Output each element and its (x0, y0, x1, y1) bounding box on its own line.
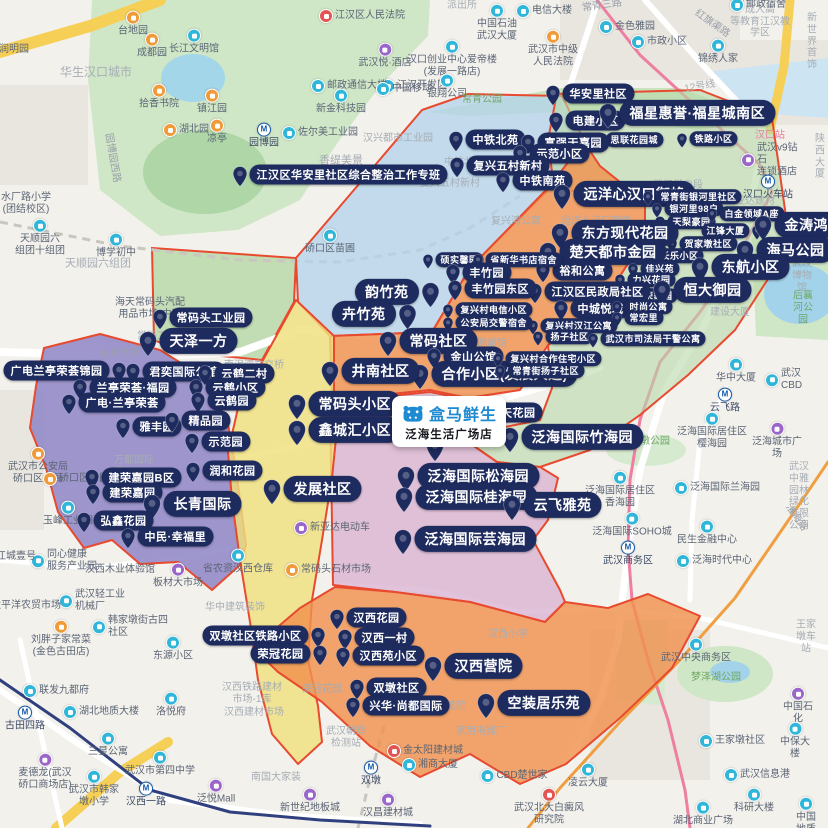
map-pin[interactable]: 荣冠花园 (251, 645, 328, 666)
metro-station-icon[interactable] (761, 175, 775, 189)
pin-label[interactable]: 常码头小区 (309, 391, 402, 417)
pin-label[interactable]: 广电·兰亭荣荟 (79, 392, 166, 412)
map-pin[interactable]: 发展社区 (263, 479, 362, 505)
location-pin-icon[interactable] (394, 529, 413, 555)
poi-icon[interactable] (210, 119, 224, 133)
location-pin-icon[interactable] (707, 208, 718, 223)
poi-icon[interactable] (599, 20, 613, 34)
poi-label-text: 金太阳建材城 (403, 745, 463, 757)
map-pin[interactable]: 江汉区华安里社区综合整治工作专班 (233, 166, 448, 187)
poi-icon[interactable] (440, 74, 454, 88)
pin-label[interactable]: 井南社区 (342, 358, 420, 384)
poi-icon[interactable] (87, 770, 101, 784)
pin-label[interactable]: 泛海国际芸海园 (415, 526, 537, 552)
poi-icon[interactable] (613, 471, 627, 485)
poi-label-text: 民生金融中心 (677, 535, 737, 547)
location-pin-icon[interactable] (677, 133, 688, 148)
location-pin-icon[interactable] (186, 462, 201, 483)
pin-label[interactable]: 汉西营院 (445, 653, 523, 679)
poi-label[interactable]: 博学初中 (96, 233, 136, 260)
metro-station-icon[interactable] (257, 123, 271, 137)
location-pin-icon[interactable] (599, 103, 618, 129)
poi-icon[interactable] (699, 734, 713, 748)
pin-label[interactable]: 润和花园 (203, 460, 263, 480)
poi-label[interactable]: 武汉市中级 人民法院 (528, 30, 578, 69)
poi-label[interactable]: 金色雅园 (599, 20, 655, 34)
poi-label[interactable]: 江汉区人民法院 (319, 9, 405, 23)
map-pin[interactable]: 示范园 (185, 433, 251, 454)
location-pin-icon[interactable] (288, 420, 307, 446)
location-pin-icon[interactable] (379, 331, 398, 357)
poi-icon[interactable] (101, 732, 115, 746)
poi-label[interactable]: 佐尔美工业园 (282, 126, 358, 140)
poi-label-text: 镇江园 (197, 104, 227, 116)
poi-label[interactable]: 双墩 (361, 761, 381, 788)
poi-label-text: 武汉北大白癜风 研究院 (514, 803, 584, 827)
poi-icon[interactable] (187, 29, 201, 43)
map-text-label: 江城壹号 (0, 551, 36, 563)
location-pin-icon[interactable] (553, 184, 572, 210)
poi-label-text: 武汉CBD (781, 368, 807, 392)
poi-label[interactable]: 湖北地质大楼 (63, 705, 139, 719)
poi-icon[interactable] (63, 705, 77, 719)
poi-icon[interactable] (294, 521, 308, 535)
poi-icon[interactable] (171, 563, 185, 577)
map-pin[interactable]: 汉西营院 (424, 656, 523, 682)
poi-icon[interactable] (741, 153, 755, 167)
poi-label[interactable]: 刘胖子家常菜 (金色古田店) (31, 620, 91, 659)
pin-label[interactable]: 铁路小区 (690, 131, 738, 146)
location-pin-icon[interactable] (346, 697, 361, 718)
pin-label[interactable]: 思联花园城 (606, 132, 664, 147)
location-pin-icon[interactable] (477, 693, 496, 719)
store-card[interactable]: 盒马鲜生 泛海生活广场店 (392, 396, 506, 447)
poi-label[interactable]: 园博园 (249, 123, 279, 150)
map-pin[interactable]: 泛海国际竹海园 (501, 427, 644, 453)
poi-icon[interactable] (730, 0, 744, 12)
poi-label[interactable]: 市政小区 (631, 35, 687, 49)
poi-icon[interactable] (153, 751, 167, 765)
pin-label[interactable]: 荣冠花园 (251, 643, 311, 663)
poi-icon[interactable] (323, 229, 337, 243)
poi-label[interactable]: 洛悦府 (156, 692, 186, 719)
pin-label[interactable]: 汉西苑小区 (353, 645, 425, 665)
poi-icon[interactable] (770, 422, 784, 436)
poi-label[interactable]: 武汉市韩家 墩小学 (69, 770, 119, 809)
poi-label-text: 中国移动 (392, 83, 432, 95)
poi-label[interactable]: 中国移动 (376, 82, 432, 96)
pin-label[interactable]: 广电兰亭荣荟锦园 (4, 360, 110, 380)
poi-icon[interactable] (378, 43, 392, 57)
poi-icon[interactable] (205, 89, 219, 103)
poi-icon[interactable] (490, 4, 504, 18)
location-pin-icon[interactable] (86, 484, 101, 505)
poi-label[interactable]: 武汉v9钻石 连锁酒店 (741, 142, 799, 177)
poi-label-text: 华中建筑装饰 (205, 602, 265, 614)
poi-label-text: 武汉轻工业 机械厂 (75, 589, 125, 613)
map-text-label: 天顺园六组团 (65, 258, 131, 271)
location-pin-icon[interactable] (263, 479, 282, 505)
map-pin[interactable]: 汉西苑小区 (336, 647, 425, 668)
location-pin-icon[interactable] (321, 361, 340, 387)
map-pin[interactable]: 润和花园 (186, 462, 263, 483)
poi-icon[interactable] (625, 512, 639, 526)
poi-icon[interactable] (285, 563, 299, 577)
location-pin-icon[interactable] (233, 166, 248, 187)
map-text-label: 汉西小学 (488, 629, 528, 641)
poi-label[interactable]: 天顺园六 组团十组团 (15, 219, 65, 258)
metro-station-icon[interactable] (364, 761, 378, 775)
poi-label[interactable]: 中国石化 (783, 687, 813, 726)
location-pin-icon[interactable] (139, 331, 158, 357)
location-pin-icon[interactable] (121, 528, 136, 549)
pin-label[interactable]: 扬子社区 (546, 329, 594, 344)
poi-icon[interactable] (765, 373, 779, 387)
poi-label[interactable]: 泛海时代中心 (676, 554, 752, 568)
poi-label[interactable]: 常码头石材市场 (285, 563, 371, 577)
poi-icon[interactable] (724, 768, 738, 782)
poi-icon[interactable] (33, 219, 47, 233)
poi-icon[interactable] (788, 722, 802, 736)
poi-icon[interactable] (696, 801, 710, 815)
map-pin[interactable]: 卉竹苑 (332, 304, 417, 330)
poi-icon[interactable] (516, 4, 530, 18)
poi-icon[interactable] (109, 233, 123, 247)
pin-label[interactable]: 江汉区华安里社区综合整治工作专班 (250, 164, 448, 184)
poi-icon[interactable] (61, 501, 75, 515)
poi-icon[interactable] (674, 481, 688, 495)
poi-label[interactable]: 华中大厦 (716, 358, 756, 385)
poi-icon[interactable] (164, 692, 178, 706)
poi-icon[interactable] (676, 554, 690, 568)
poi-label-text: 双墩 (361, 776, 381, 788)
poi-label[interactable]: 湖北商业广场 (673, 801, 733, 828)
map-pin[interactable]: 天泽一方 (139, 331, 238, 357)
location-pin-icon[interactable] (330, 609, 345, 630)
poi-label-text: 陕西大厦 (815, 133, 825, 180)
poi-label-text: 江汉区人民法院 (335, 10, 405, 22)
map-pin[interactable]: 常青街扬子社区 (495, 365, 585, 380)
poi-label[interactable]: 金太阳建材城 (387, 744, 463, 758)
location-pin-icon[interactable] (421, 282, 440, 308)
pin-label[interactable]: 空装居乐苑 (498, 690, 591, 716)
poi-icon[interactable] (59, 594, 73, 608)
poi-label[interactable]: 科研大楼 (734, 788, 774, 815)
pin-label[interactable]: 天泽一方 (160, 328, 238, 354)
map-text-label: 复兴湾公寓 (491, 216, 541, 228)
map-pin[interactable]: 精品园 (165, 412, 231, 433)
pin-label[interactable]: 常码头工业园 (170, 307, 253, 327)
poi-icon[interactable] (282, 126, 296, 140)
poi-label-text: 硚口区苗圃 (305, 244, 355, 256)
map-pin[interactable]: 武汉市司法局干警公寓 (588, 333, 706, 348)
poi-label[interactable]: 凉亭 (207, 119, 227, 146)
poi-label[interactable]: 中国石油 武汉大厦 (477, 4, 517, 43)
poi-icon[interactable] (711, 39, 725, 53)
location-pin-icon[interactable] (185, 433, 200, 454)
location-pin-icon[interactable] (77, 512, 92, 533)
location-pin-icon[interactable] (153, 309, 168, 330)
poi-icon[interactable] (311, 79, 325, 93)
poi-icon[interactable] (546, 30, 560, 44)
map-text-label: 润明园 (0, 44, 29, 56)
map-pin[interactable]: 常码头工业园 (153, 309, 253, 330)
poi-label-text: 板材大市场 (153, 578, 203, 590)
map-pin[interactable]: 兴华·尚都国际 (346, 697, 450, 718)
poi-label[interactable]: 湘商大厦 (402, 758, 458, 772)
poi-icon[interactable] (376, 82, 390, 96)
poi-label[interactable]: 武汉商务区 (603, 541, 653, 568)
map-pin[interactable]: 井南社区 (321, 361, 420, 387)
poi-icon[interactable] (23, 684, 37, 698)
map-pin[interactable]: 云飞雅苑 (503, 495, 602, 521)
poi-icon[interactable] (402, 758, 416, 772)
location-pin-icon[interactable] (336, 647, 351, 668)
poi-label[interactable]: CBD楚世家 (480, 769, 547, 783)
pin-label[interactable]: 卉竹苑 (332, 301, 396, 327)
map-pin[interactable]: 广电·兰亭荣荟 (62, 394, 166, 415)
poi-label-text: 复兴湾公寓 (491, 216, 541, 228)
pin-label[interactable]: 武汉市司法局干警公寓 (601, 331, 706, 346)
poi-label[interactable]: 中国地质大学 (795, 797, 817, 828)
poi-icon[interactable] (729, 358, 743, 372)
poi-label[interactable]: 省农资汉西仓库 (203, 549, 273, 576)
map-text-label: 梦泽湖公园 (691, 672, 741, 684)
poi-label[interactable]: 东源小区 (153, 636, 193, 663)
pin-label[interactable]: 汉西一村 (355, 627, 415, 647)
map-text-label: 太平洋农贸市场 (0, 600, 61, 612)
poi-label[interactable]: 联发九都府 (23, 684, 89, 698)
poi-label-text: 中保大楼 (779, 737, 812, 761)
location-pin-icon[interactable] (116, 418, 131, 439)
poi-icon[interactable] (231, 549, 245, 563)
location-pin-icon[interactable] (503, 495, 522, 521)
metro-station-icon[interactable] (621, 541, 635, 555)
pin-label[interactable]: 金涛鸿公馆 (775, 212, 828, 238)
poi-label-text: 武汉悦·酒店 (358, 58, 411, 70)
location-pin-icon[interactable] (398, 304, 417, 330)
poi-label-text: 江城壹号 (0, 551, 36, 563)
poi-label-text: 常码头石材市场 (301, 564, 371, 576)
poi-icon[interactable] (303, 788, 317, 802)
poi-icon[interactable] (92, 620, 106, 634)
pin-label[interactable]: 双墩社区铁路小区 (203, 625, 309, 645)
poi-label[interactable]: 武汉悦·酒店 (358, 43, 411, 70)
pin-label[interactable]: 精品园 (182, 410, 231, 430)
poi-icon[interactable] (38, 753, 52, 767)
poi-label-text: 金色雅园 (615, 21, 655, 33)
pin-label[interactable]: 汉西花园 (347, 607, 407, 627)
location-pin-icon[interactable] (450, 157, 465, 178)
poi-label[interactable]: 汉西一路 (126, 782, 166, 809)
poi-icon[interactable] (480, 769, 494, 783)
pin-label[interactable]: 云鹤园 (208, 390, 257, 410)
poi-label[interactable]: 硚口区苗圃 (305, 229, 355, 256)
poi-label[interactable]: 泛海城市广场 (752, 422, 803, 461)
poi-label[interactable]: 民生金融中心 (677, 520, 737, 547)
map-pin[interactable]: 铁路小区 (677, 133, 738, 148)
poi-label-text: 汉西小学 (488, 629, 528, 641)
map-pin[interactable]: 丰竹园东区 (448, 280, 537, 301)
poi-label[interactable]: 三星公寓 (88, 732, 128, 759)
poi-label[interactable]: 王家墩社区 (699, 734, 765, 748)
pin-label[interactable]: 长青国际 (164, 491, 242, 517)
map-pin[interactable]: 泛海国际芸海园 (394, 529, 537, 555)
location-pin-icon[interactable] (533, 331, 544, 346)
poi-label[interactable]: 汉口创业中心爱帝楼 (发展一路店) (407, 40, 497, 79)
metro-station-icon[interactable] (139, 782, 153, 796)
pin-label[interactable]: 常青街扬子社区 (508, 363, 585, 378)
poi-label-text: 荣冠花园 (302, 684, 342, 696)
location-pin-icon[interactable] (496, 172, 511, 193)
poi-label[interactable]: 拾香书院 (139, 84, 179, 111)
store-name: 盒马鲜生 (429, 401, 497, 425)
pin-label[interactable]: 双墩社区 (367, 677, 427, 697)
pin-label[interactable]: 发展社区 (284, 476, 362, 502)
poi-label-text: 刘胖子家常菜 (金色古田店) (31, 635, 91, 659)
poi-label-text: 台地园 (118, 26, 148, 38)
poi-label[interactable]: 武汉市第四中学 (125, 751, 195, 778)
poi-label[interactable]: 泛海国际兰海园 (674, 481, 760, 495)
poi-label[interactable]: 板材大市场 (153, 563, 203, 590)
poi-label-text: 汉西木业体验馆 (85, 564, 155, 576)
metro-station-icon[interactable] (18, 706, 32, 720)
poi-label-text: 长江文明馆 (169, 44, 219, 56)
map-pin[interactable]: 福星惠誉·福星城南区 (599, 103, 776, 129)
pin-label[interactable]: 示范园 (202, 431, 251, 451)
poi-label-text: 泛海城市广场 (752, 437, 803, 461)
location-pin-icon[interactable] (62, 394, 77, 415)
poi-label[interactable]: 麦德龙(武汉 硚口商场店) (18, 753, 71, 792)
poi-label[interactable]: 武汉信息港 (724, 768, 790, 782)
pin-label[interactable]: 华安里社区 (563, 83, 635, 103)
map-text-label: 常青公园 (462, 94, 502, 106)
map-pin[interactable]: 常宏里 (612, 312, 664, 327)
poi-label[interactable]: 武汉北大白癜风 研究院 (514, 788, 584, 827)
poi-label-text: 湖北园 (179, 124, 209, 136)
poi-label[interactable]: 邮政宿舍 (730, 0, 786, 12)
poi-label-text: 汉西建材市场 (224, 707, 284, 719)
poi-icon[interactable] (631, 35, 645, 49)
location-pin-icon[interactable] (588, 333, 599, 348)
map-text-label: 王家墩车站 (795, 619, 817, 654)
poi-icon[interactable] (319, 9, 333, 23)
poi-label-text: 泛海国际SOHO城 (592, 527, 671, 539)
poi-label-text: 科研大楼 (734, 803, 774, 815)
poi-label[interactable]: 泛悦Mall (197, 779, 235, 806)
poi-icon[interactable] (799, 797, 813, 811)
map-pin[interactable]: 扬子社区 (533, 331, 594, 346)
location-pin-icon[interactable] (313, 645, 328, 666)
poi-label-text: 武汉商务区 (603, 556, 653, 568)
poi-label-text: 邮政宿舍 (746, 0, 786, 11)
map-text-label: 建设大厦 (710, 307, 750, 319)
poi-icon[interactable] (700, 520, 714, 534)
poi-label-text: 洛悦府 (156, 707, 186, 719)
poi-icon[interactable] (209, 779, 223, 793)
pin-label[interactable]: 兴华·尚都国际 (363, 695, 450, 715)
location-pin-icon[interactable] (449, 131, 464, 152)
map-pin[interactable]: 空装居乐苑 (477, 693, 591, 719)
poi-label[interactable]: 泛海国际居住区 樱海园 (677, 412, 747, 451)
pin-label[interactable]: 丰竹园东区 (465, 278, 537, 298)
poi-label[interactable]: 云飞路 (710, 388, 740, 415)
poi-icon[interactable] (126, 11, 140, 25)
poi-icon[interactable] (581, 763, 595, 777)
poi-label[interactable]: 镇江园 (197, 89, 227, 116)
map-pin[interactable]: 中民·幸福里 (121, 528, 214, 549)
poi-label[interactable]: 泛海国际SOHO城 (592, 512, 671, 539)
poi-label[interactable]: 电信大楼 (516, 4, 572, 18)
poi-label[interactable]: 湖北园 (163, 123, 209, 137)
poi-icon[interactable] (31, 447, 45, 461)
pin-label[interactable]: 云飞雅苑 (524, 492, 602, 518)
poi-label[interactable]: 长江文明馆 (169, 29, 219, 56)
map-canvas[interactable]: 盒马鲜生 泛海生活广场店 成都园台地园长江文明馆湖北工业大学成人高 等教育江汉教… (0, 0, 828, 828)
location-pin-icon[interactable] (288, 394, 307, 420)
location-pin-icon[interactable] (546, 85, 561, 106)
pin-label[interactable]: 福星惠誉·福星城南区 (620, 100, 776, 126)
poi-label[interactable]: 韩家墩街古四 社区 (92, 615, 168, 639)
pin-label[interactable]: 常宏里 (625, 310, 664, 325)
location-pin-icon[interactable] (448, 280, 463, 301)
poi-icon[interactable] (152, 84, 166, 98)
location-pin-icon[interactable] (165, 412, 180, 433)
poi-icon[interactable] (542, 788, 556, 802)
map-pin[interactable]: 鑫城汇小区 (288, 420, 402, 446)
poi-label-text: 云飞路 (710, 403, 740, 415)
poi-icon[interactable] (381, 793, 395, 807)
poi-label[interactable]: 汉昌建材城 (363, 793, 413, 820)
poi-icon[interactable] (689, 638, 703, 652)
poi-label[interactable]: 台地园 (118, 11, 148, 38)
poi-icon[interactable] (387, 744, 401, 758)
poi-icon[interactable] (163, 123, 177, 137)
poi-label[interactable]: 武汉轻工业 机械厂 (59, 589, 125, 613)
poi-label-text: 太平洋农贸市场 (0, 600, 61, 612)
pin-label[interactable]: 泛海国际竹海园 (522, 424, 644, 450)
poi-label[interactable]: 古田四路 (5, 706, 45, 733)
map-pin[interactable]: 长青国际 (143, 494, 242, 520)
poi-icon[interactable] (445, 40, 459, 54)
location-pin-icon[interactable] (495, 365, 506, 380)
pin-label[interactable]: 恒大御园 (674, 277, 752, 303)
poi-icon[interactable] (54, 620, 68, 634)
poi-label[interactable]: 银翔公司 (427, 74, 467, 101)
poi-icon[interactable] (747, 788, 761, 802)
poi-label-text: 中国石油 武汉大厦 (477, 19, 517, 43)
location-pin-icon[interactable] (395, 487, 414, 513)
poi-label[interactable]: 锦绣人家 (698, 39, 738, 66)
poi-icon[interactable] (791, 687, 805, 701)
metro-station-icon[interactable] (718, 388, 732, 402)
poi-icon[interactable] (166, 636, 180, 650)
poi-label[interactable]: 中保大楼 (779, 722, 812, 761)
pin-label[interactable]: 中民·幸福里 (138, 526, 214, 546)
location-pin-icon[interactable] (549, 112, 564, 133)
pin-label[interactable]: 鑫城汇小区 (309, 417, 402, 443)
poi-label[interactable]: 凌云大厦 (568, 763, 608, 790)
poi-label[interactable]: 武汉CBD (765, 368, 807, 392)
location-pin-icon[interactable] (423, 254, 434, 269)
poi-label[interactable]: 新世纪地板城 (280, 788, 340, 815)
poi-label[interactable]: 新亚达电动车 (294, 521, 370, 535)
poi-label[interactable]: 武汉中央商务区 (661, 638, 731, 665)
poi-label-text: 天顺园六组团 (65, 258, 131, 271)
map-text-label: 汉西建材市场 (224, 707, 284, 719)
poi-label-text: 拾香书院 (139, 99, 179, 111)
poi-icon[interactable] (43, 472, 57, 486)
